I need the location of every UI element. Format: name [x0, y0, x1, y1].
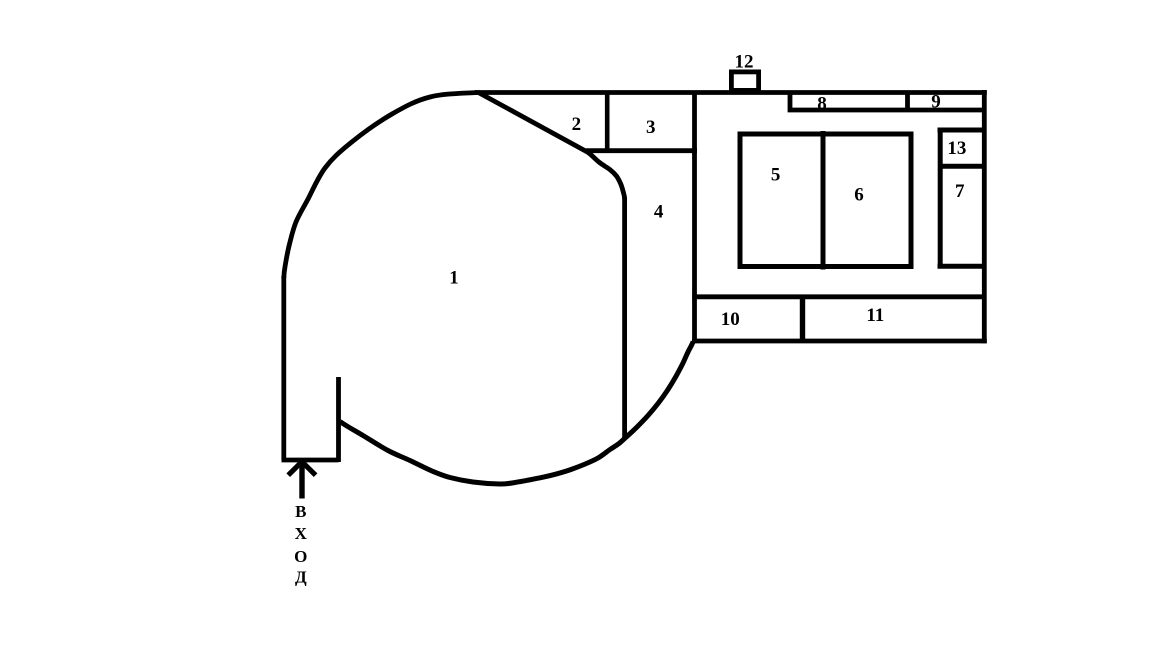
svg-text:2: 2: [572, 114, 582, 135]
svg-text:Д: Д: [295, 567, 307, 586]
svg-text:5: 5: [771, 165, 781, 186]
svg-text:1: 1: [449, 268, 459, 289]
svg-text:9: 9: [931, 91, 941, 112]
svg-text:13: 13: [947, 138, 966, 159]
svg-text:В: В: [295, 502, 306, 521]
svg-text:Х: Х: [295, 524, 308, 543]
svg-text:6: 6: [854, 185, 864, 206]
svg-text:8: 8: [817, 94, 827, 115]
svg-text:12: 12: [735, 52, 754, 73]
svg-text:О: О: [294, 547, 307, 566]
svg-text:3: 3: [646, 117, 656, 138]
svg-text:11: 11: [866, 305, 884, 326]
svg-text:7: 7: [955, 181, 965, 202]
svg-text:4: 4: [654, 202, 664, 223]
svg-text:10: 10: [721, 309, 740, 330]
